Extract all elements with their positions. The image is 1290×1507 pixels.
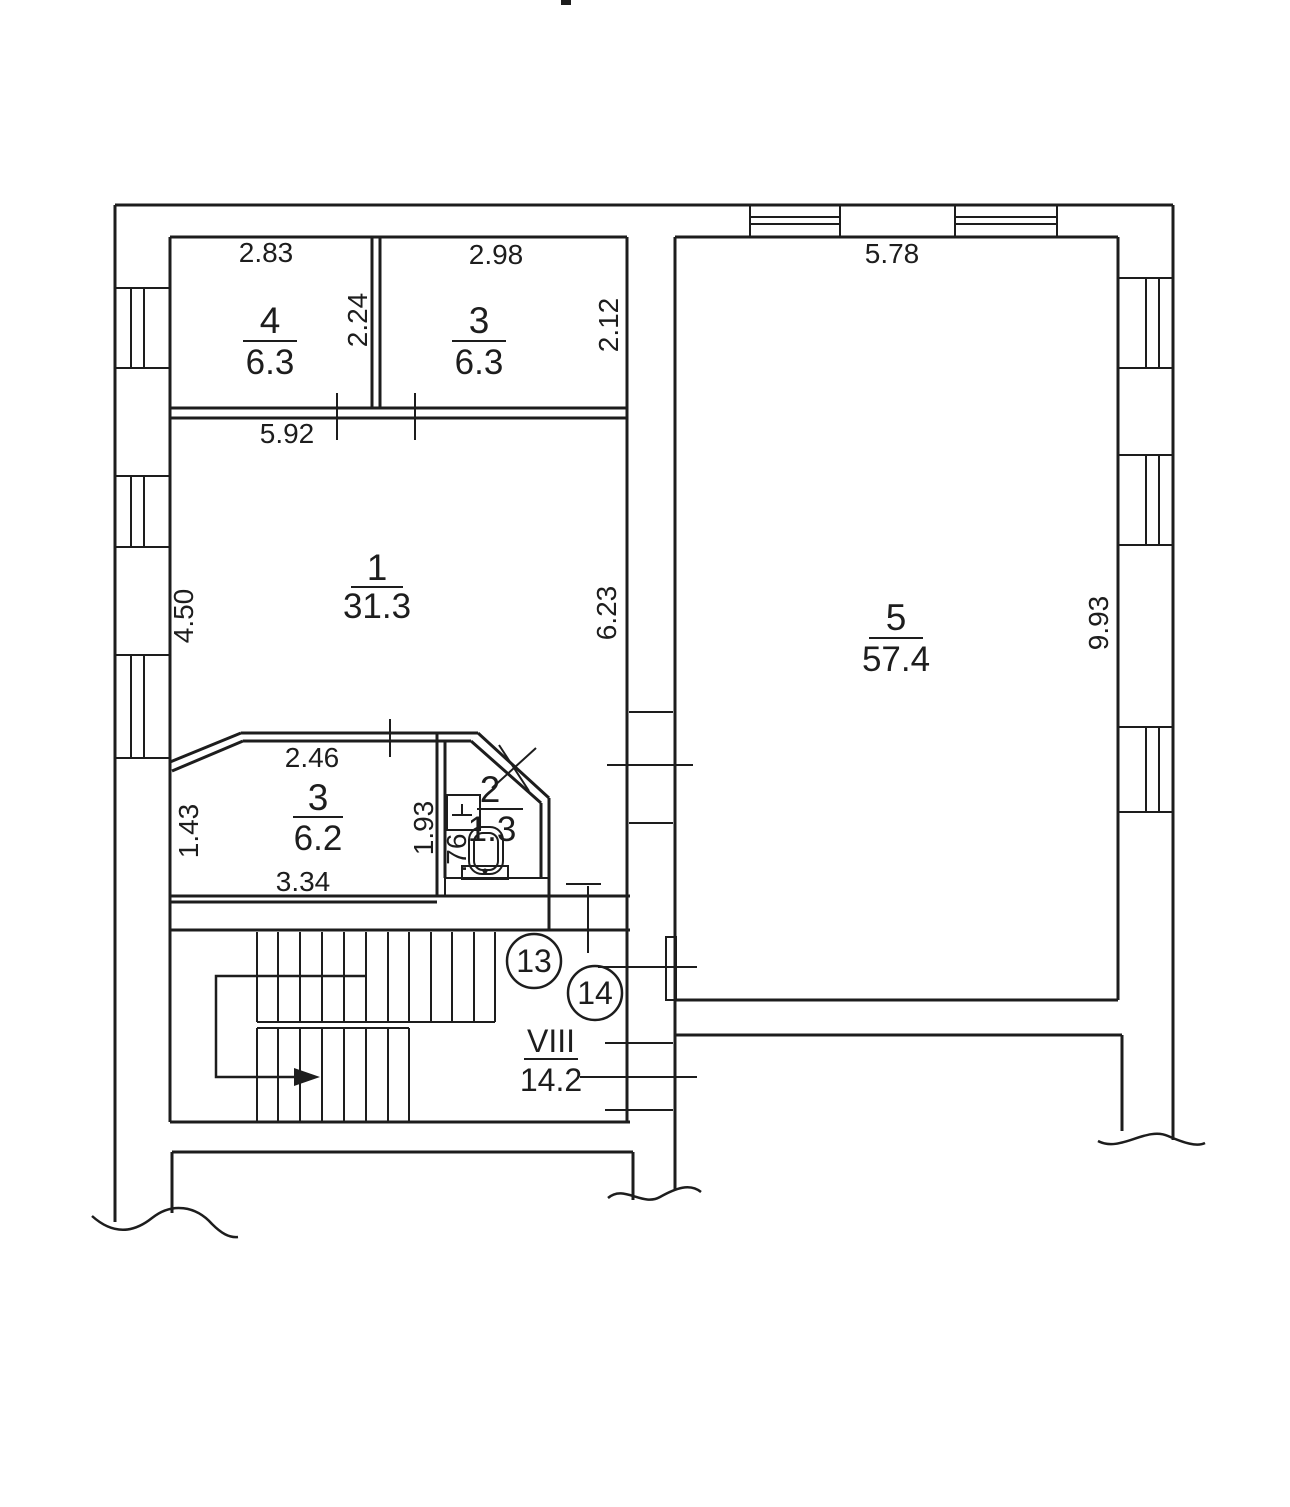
stair-walk-line <box>216 976 365 1077</box>
room-5-label: 5 57.4 <box>862 597 930 679</box>
dim-room4-height: 2.24 <box>342 293 373 348</box>
room-number: 2 <box>480 769 501 810</box>
room-4-label: 4 6.3 <box>243 300 297 382</box>
window-icon <box>115 476 170 547</box>
room-area: 14.2 <box>520 1062 582 1098</box>
markers: 13 14 <box>507 934 622 1020</box>
window-icon <box>1118 455 1173 545</box>
dim-room5-width: 5.78 <box>865 238 920 269</box>
room-area: 1.3 <box>468 810 517 849</box>
dim-room3-top-height: 2.12 <box>593 298 624 353</box>
dim-room1-right-height: 6.23 <box>591 586 622 641</box>
dim-wc-inner-width: .76 <box>441 834 472 873</box>
dim-room1-left-height: 4.50 <box>168 589 199 644</box>
dim-room3-low-left: 1.43 <box>173 804 204 859</box>
room-number: 5 <box>886 597 907 638</box>
room-area: 57.4 <box>862 640 930 679</box>
marker-13-label: 13 <box>516 943 552 979</box>
room-3-lower-label: 3 6.2 <box>293 777 343 858</box>
room-area: 6.3 <box>246 343 295 382</box>
dim-wc-left-height: 1.93 <box>408 801 439 856</box>
floorplan-drawing: 13 14 4 6.3 3 6.3 1 31.3 5 57.4 3 6.2 <box>0 0 1290 1507</box>
room-1-label: 1 31.3 <box>343 547 411 626</box>
staircase <box>216 932 495 1122</box>
room-3-top-label: 3 6.3 <box>452 300 506 382</box>
stair-direction-arrow-icon <box>294 1068 320 1086</box>
room-area: 31.3 <box>343 587 411 626</box>
room-number: 1 <box>367 547 388 588</box>
dim-room3-low-bottom: 3.34 <box>276 866 331 897</box>
dim-room3-top-width: 2.98 <box>469 239 524 270</box>
window-icon <box>1118 727 1173 812</box>
wall-break-lines <box>92 1134 1205 1237</box>
hatched-wall-segments <box>445 205 1057 1000</box>
dim-room4-width: 2.83 <box>239 237 294 268</box>
dim-room5-height: 9.93 <box>1083 596 1114 651</box>
dim-room3-low-top: 2.46 <box>285 742 340 773</box>
window-icon <box>115 288 170 368</box>
window-icon <box>115 655 170 758</box>
room-number: VIII <box>527 1023 575 1059</box>
room-area: 6.3 <box>455 343 504 382</box>
marker-14-label: 14 <box>577 975 613 1011</box>
room-number: 3 <box>308 777 329 818</box>
left-wall-windows <box>115 288 170 758</box>
scan-artifact <box>561 0 571 5</box>
dim-room1-width: 5.92 <box>260 418 315 449</box>
room-number: 3 <box>469 300 490 341</box>
window-icon <box>1118 278 1173 368</box>
right-wall-windows <box>1118 278 1173 812</box>
floorplan-sheet: 13 14 4 6.3 3 6.3 1 31.3 5 57.4 3 6.2 <box>0 0 1290 1507</box>
dimension-ticks <box>337 393 697 1110</box>
room-number: 4 <box>260 300 281 341</box>
stair-hall-label: VIII 14.2 <box>520 1023 582 1098</box>
room-area: 6.2 <box>294 819 343 858</box>
